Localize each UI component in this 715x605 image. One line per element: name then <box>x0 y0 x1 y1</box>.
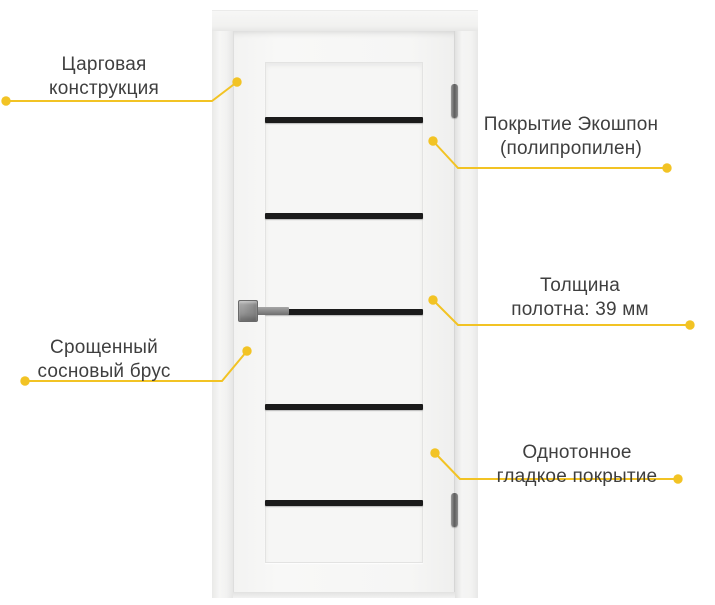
annotation-text-line: Срощенный <box>14 336 194 360</box>
door-threshold-shadow <box>233 592 455 598</box>
annotation-frame-construction: Царговая конструкция <box>14 53 194 101</box>
annotation-timber: Срощенный сосновый брус <box>14 336 194 384</box>
annotation-text-line: конструкция <box>14 77 194 101</box>
door-hinge-bottom <box>451 493 458 527</box>
annotation-text-line: сосновый брус <box>14 360 194 384</box>
leader-dot <box>1 96 10 105</box>
annotation-text-line: Покрытие Экошпон <box>471 113 671 137</box>
glass-insert-stripe-1 <box>265 117 423 123</box>
glass-insert-stripe-2 <box>265 213 423 219</box>
annotation-text-line: Царговая <box>14 53 194 77</box>
door-frame-right <box>455 10 478 598</box>
door-frame-left <box>212 10 233 598</box>
annotation-coating: Покрытие Экошпон (полипропилен) <box>471 113 671 161</box>
leader-dot <box>662 163 671 172</box>
annotation-text-line: гладкое покрытие <box>477 465 677 489</box>
lock-latch-bar <box>255 307 289 315</box>
lock-plate <box>238 300 258 322</box>
annotation-text-line: Толщина <box>480 274 680 298</box>
annotation-surface: Однотонное гладкое покрытие <box>477 441 677 489</box>
annotation-text-line: Однотонное <box>477 441 677 465</box>
annotation-thickness: Толщина полотна: 39 мм <box>480 274 680 322</box>
door-annotation-diagram: Царговая конструкция Покрытие Экошпон (п… <box>0 0 715 605</box>
leader-dot <box>685 320 694 329</box>
annotation-text-line: полотна: 39 мм <box>480 298 680 322</box>
annotation-text-line: (полипропилен) <box>471 137 671 161</box>
door-frame-top <box>212 10 478 31</box>
glass-insert-stripe-4 <box>265 404 423 410</box>
glass-insert-stripe-5 <box>265 500 423 506</box>
door-hinge-top <box>451 84 458 118</box>
